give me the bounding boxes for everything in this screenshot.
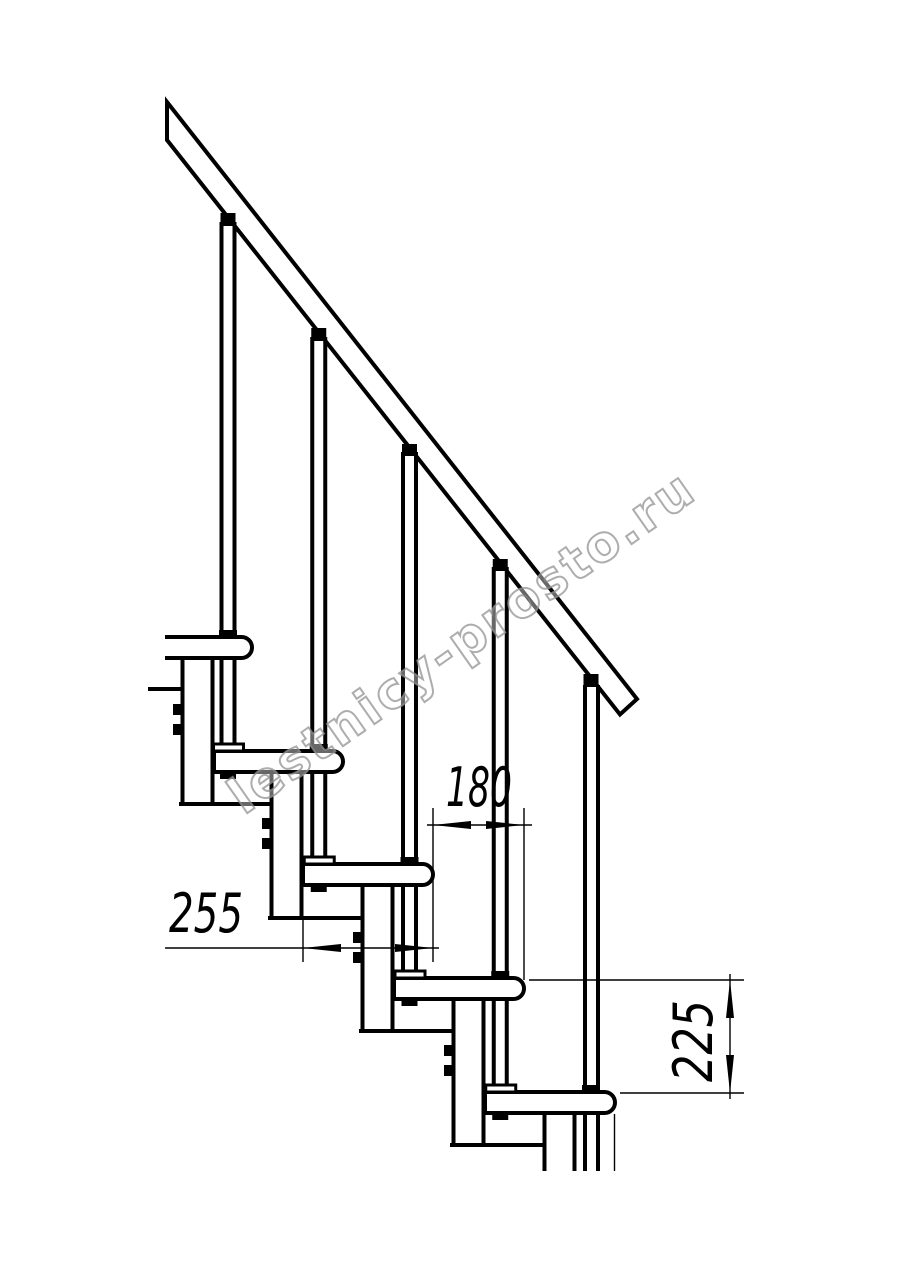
- tread-2: [214, 751, 343, 772]
- arrow-down-icon: [726, 1055, 734, 1093]
- dimension-label-180: 180: [446, 756, 512, 819]
- tread-5: [485, 1092, 615, 1113]
- base-plate-2: [304, 857, 334, 864]
- arrow-up-icon: [726, 980, 734, 1018]
- collar-1: [219, 630, 237, 638]
- arrow-left-icon: [433, 821, 471, 829]
- dimension-step-overlap: 180: [427, 756, 532, 980]
- tread-3: [303, 864, 433, 885]
- base-plate-3: [395, 971, 425, 978]
- collar-5: [582, 1085, 600, 1093]
- collar-2: [310, 744, 328, 752]
- base-plate-4: [486, 1085, 516, 1092]
- nut-2: [311, 884, 327, 892]
- baluster-4: [494, 569, 507, 1097]
- tread-4: [394, 978, 524, 999]
- base-plate-1: [214, 744, 244, 751]
- nut-3: [402, 998, 418, 1006]
- dimension-label-225: 225: [662, 1000, 725, 1082]
- baluster-1: [222, 224, 235, 756]
- technical-drawing-canvas: 180 255 225 lestnicy-prosto.ru: [0, 0, 914, 1280]
- baluster-3: [403, 454, 416, 983]
- collar-3: [401, 857, 419, 865]
- tread-1: [165, 637, 252, 658]
- collar-4: [491, 971, 509, 979]
- baluster-2: [312, 339, 325, 869]
- arrow-left-icon: [303, 944, 341, 952]
- nut-4: [492, 1112, 508, 1120]
- nut-1: [220, 771, 236, 779]
- staircase-drawing: 180 255 225: [0, 0, 914, 1280]
- dimension-label-255: 255: [169, 882, 243, 945]
- balusters: [222, 224, 599, 1171]
